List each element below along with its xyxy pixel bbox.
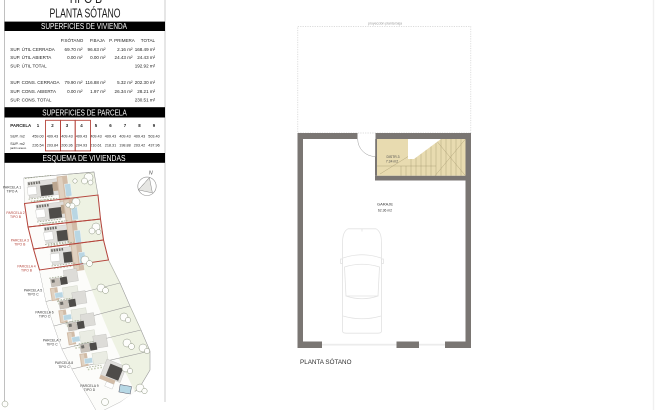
svg-text:5: 5 [95,123,98,128]
svg-text:SUPERFICIES DE PARCELA: SUPERFICIES DE PARCELA [42,109,127,118]
svg-text:SUP. ÚTIL TOTAL: SUP. ÚTIL TOTAL [10,63,47,69]
svg-text:210.61: 210.61 [90,143,101,147]
svg-text:226.54: 226.54 [32,143,43,147]
svg-text:503.40: 503.40 [148,134,159,138]
svg-text:204.93: 204.93 [76,143,87,147]
svg-text:459.00: 459.00 [32,134,43,138]
svg-text:1: 1 [37,123,40,128]
svg-text:TIPO C: TIPO C [58,365,70,369]
svg-text:TIPO C: TIPO C [39,315,51,319]
svg-text:409.43: 409.43 [90,134,101,138]
svg-text:168.49 m²: 168.49 m² [135,47,156,52]
svg-text:409.43: 409.43 [105,134,116,138]
svg-text:96.63 m²: 96.63 m² [88,47,106,52]
svg-text:TIPO D: TIPO D [84,388,96,392]
svg-text:SUP. ÚTIL ABIERTA: SUP. ÚTIL ABIERTA [10,54,52,60]
svg-text:TIPO C: TIPO C [46,343,58,347]
svg-text:0.00 m²: 0.00 m² [67,55,83,60]
svg-text:TIPO B: TIPO B [14,243,26,247]
svg-text:24.43 m²: 24.43 m² [137,55,155,60]
svg-text:198.88: 198.88 [119,143,130,147]
svg-text:79.90 m²: 79.90 m² [65,80,83,85]
svg-text:24.43 m²: 24.43 m² [115,55,133,60]
svg-text:1.97 m²: 1.97 m² [90,89,106,94]
svg-text:TIPO B: TIPO B [10,215,22,219]
svg-text:218.31: 218.31 [105,143,116,147]
svg-text:2.16 m²: 2.16 m² [117,47,133,52]
svg-text:PLANTA SÓTANO: PLANTA SÓTANO [50,6,121,21]
svg-text:8: 8 [138,123,141,128]
svg-text:230.51 m²: 230.51 m² [135,98,156,103]
svg-text:SUP. ÚTIL CERRADA: SUP. ÚTIL CERRADA [10,46,55,52]
svg-text:409.43: 409.43 [47,134,58,138]
svg-text:409.43: 409.43 [76,134,87,138]
svg-text:SUP. CONS. ABIERTA: SUP. CONS. ABIERTA [10,89,57,94]
svg-text:PARCELA: PARCELA [10,123,32,128]
svg-text:TIPO B: TIPO B [68,0,102,6]
svg-text:P.BAJA: P.BAJA [90,38,106,43]
svg-text:SUP. m2: SUP. m2 [10,134,25,138]
svg-text:jardín anexo: jardín anexo [9,146,26,150]
svg-text:0.00 m²: 0.00 m² [90,55,106,60]
svg-text:2: 2 [51,123,54,128]
svg-text:TIPO B: TIPO B [21,269,33,273]
svg-text:PLANTA SÓTANO: PLANTA SÓTANO [300,357,352,366]
svg-text:203.84: 203.84 [47,143,58,147]
svg-text:3: 3 [66,123,69,128]
svg-text:437.96: 437.96 [148,143,159,147]
svg-text:5.32 m²: 5.32 m² [117,80,133,85]
svg-text:4: 4 [80,123,83,128]
svg-text:ESQUEMA DE VIVIENDAS: ESQUEMA DE VIVIENDAS [43,154,126,163]
svg-text:proyección planta baja: proyección planta baja [368,22,402,26]
svg-text:SUP. CONS. CERRADA: SUP. CONS. CERRADA [10,80,60,85]
svg-text:26.34 m²: 26.34 m² [115,89,133,94]
svg-text:TIPO C: TIPO C [27,293,39,297]
svg-text:62.36 m2: 62.36 m2 [378,209,392,213]
svg-text:9: 9 [153,123,156,128]
svg-text:0.00 m²: 0.00 m² [67,89,83,94]
svg-text:7.34 m2: 7.34 m2 [386,160,398,164]
svg-text:TOTAL: TOTAL [141,38,156,43]
svg-text:409.43: 409.43 [61,134,72,138]
svg-text:GARAJE: GARAJE [377,201,393,206]
svg-text:P.SÓTANO: P.SÓTANO [61,37,84,43]
svg-text:DISTR.3: DISTR.3 [387,155,400,159]
svg-text:200.36: 200.36 [61,143,72,147]
svg-text:N: N [149,171,153,177]
svg-text:409.43: 409.43 [134,134,145,138]
svg-text:TIPO A: TIPO A [7,190,19,194]
svg-text:409.43: 409.43 [119,134,130,138]
svg-text:203.42: 203.42 [134,143,145,147]
svg-text:6: 6 [109,123,112,128]
svg-text:SUPERFICIES DE VIVIENDA: SUPERFICIES DE VIVIENDA [41,22,128,31]
svg-text:P. PRIMERA: P. PRIMERA [109,38,136,43]
svg-text:SUP. CONS. TOTAL: SUP. CONS. TOTAL [10,98,52,103]
svg-text:69.70 m²: 69.70 m² [65,47,83,52]
svg-text:7: 7 [124,123,127,128]
svg-text:192.92 m²: 192.92 m² [135,64,156,69]
svg-text:202.30 m²: 202.30 m² [135,80,156,85]
svg-text:116.88 m²: 116.88 m² [85,80,106,85]
svg-text:28.21 m²: 28.21 m² [137,89,155,94]
